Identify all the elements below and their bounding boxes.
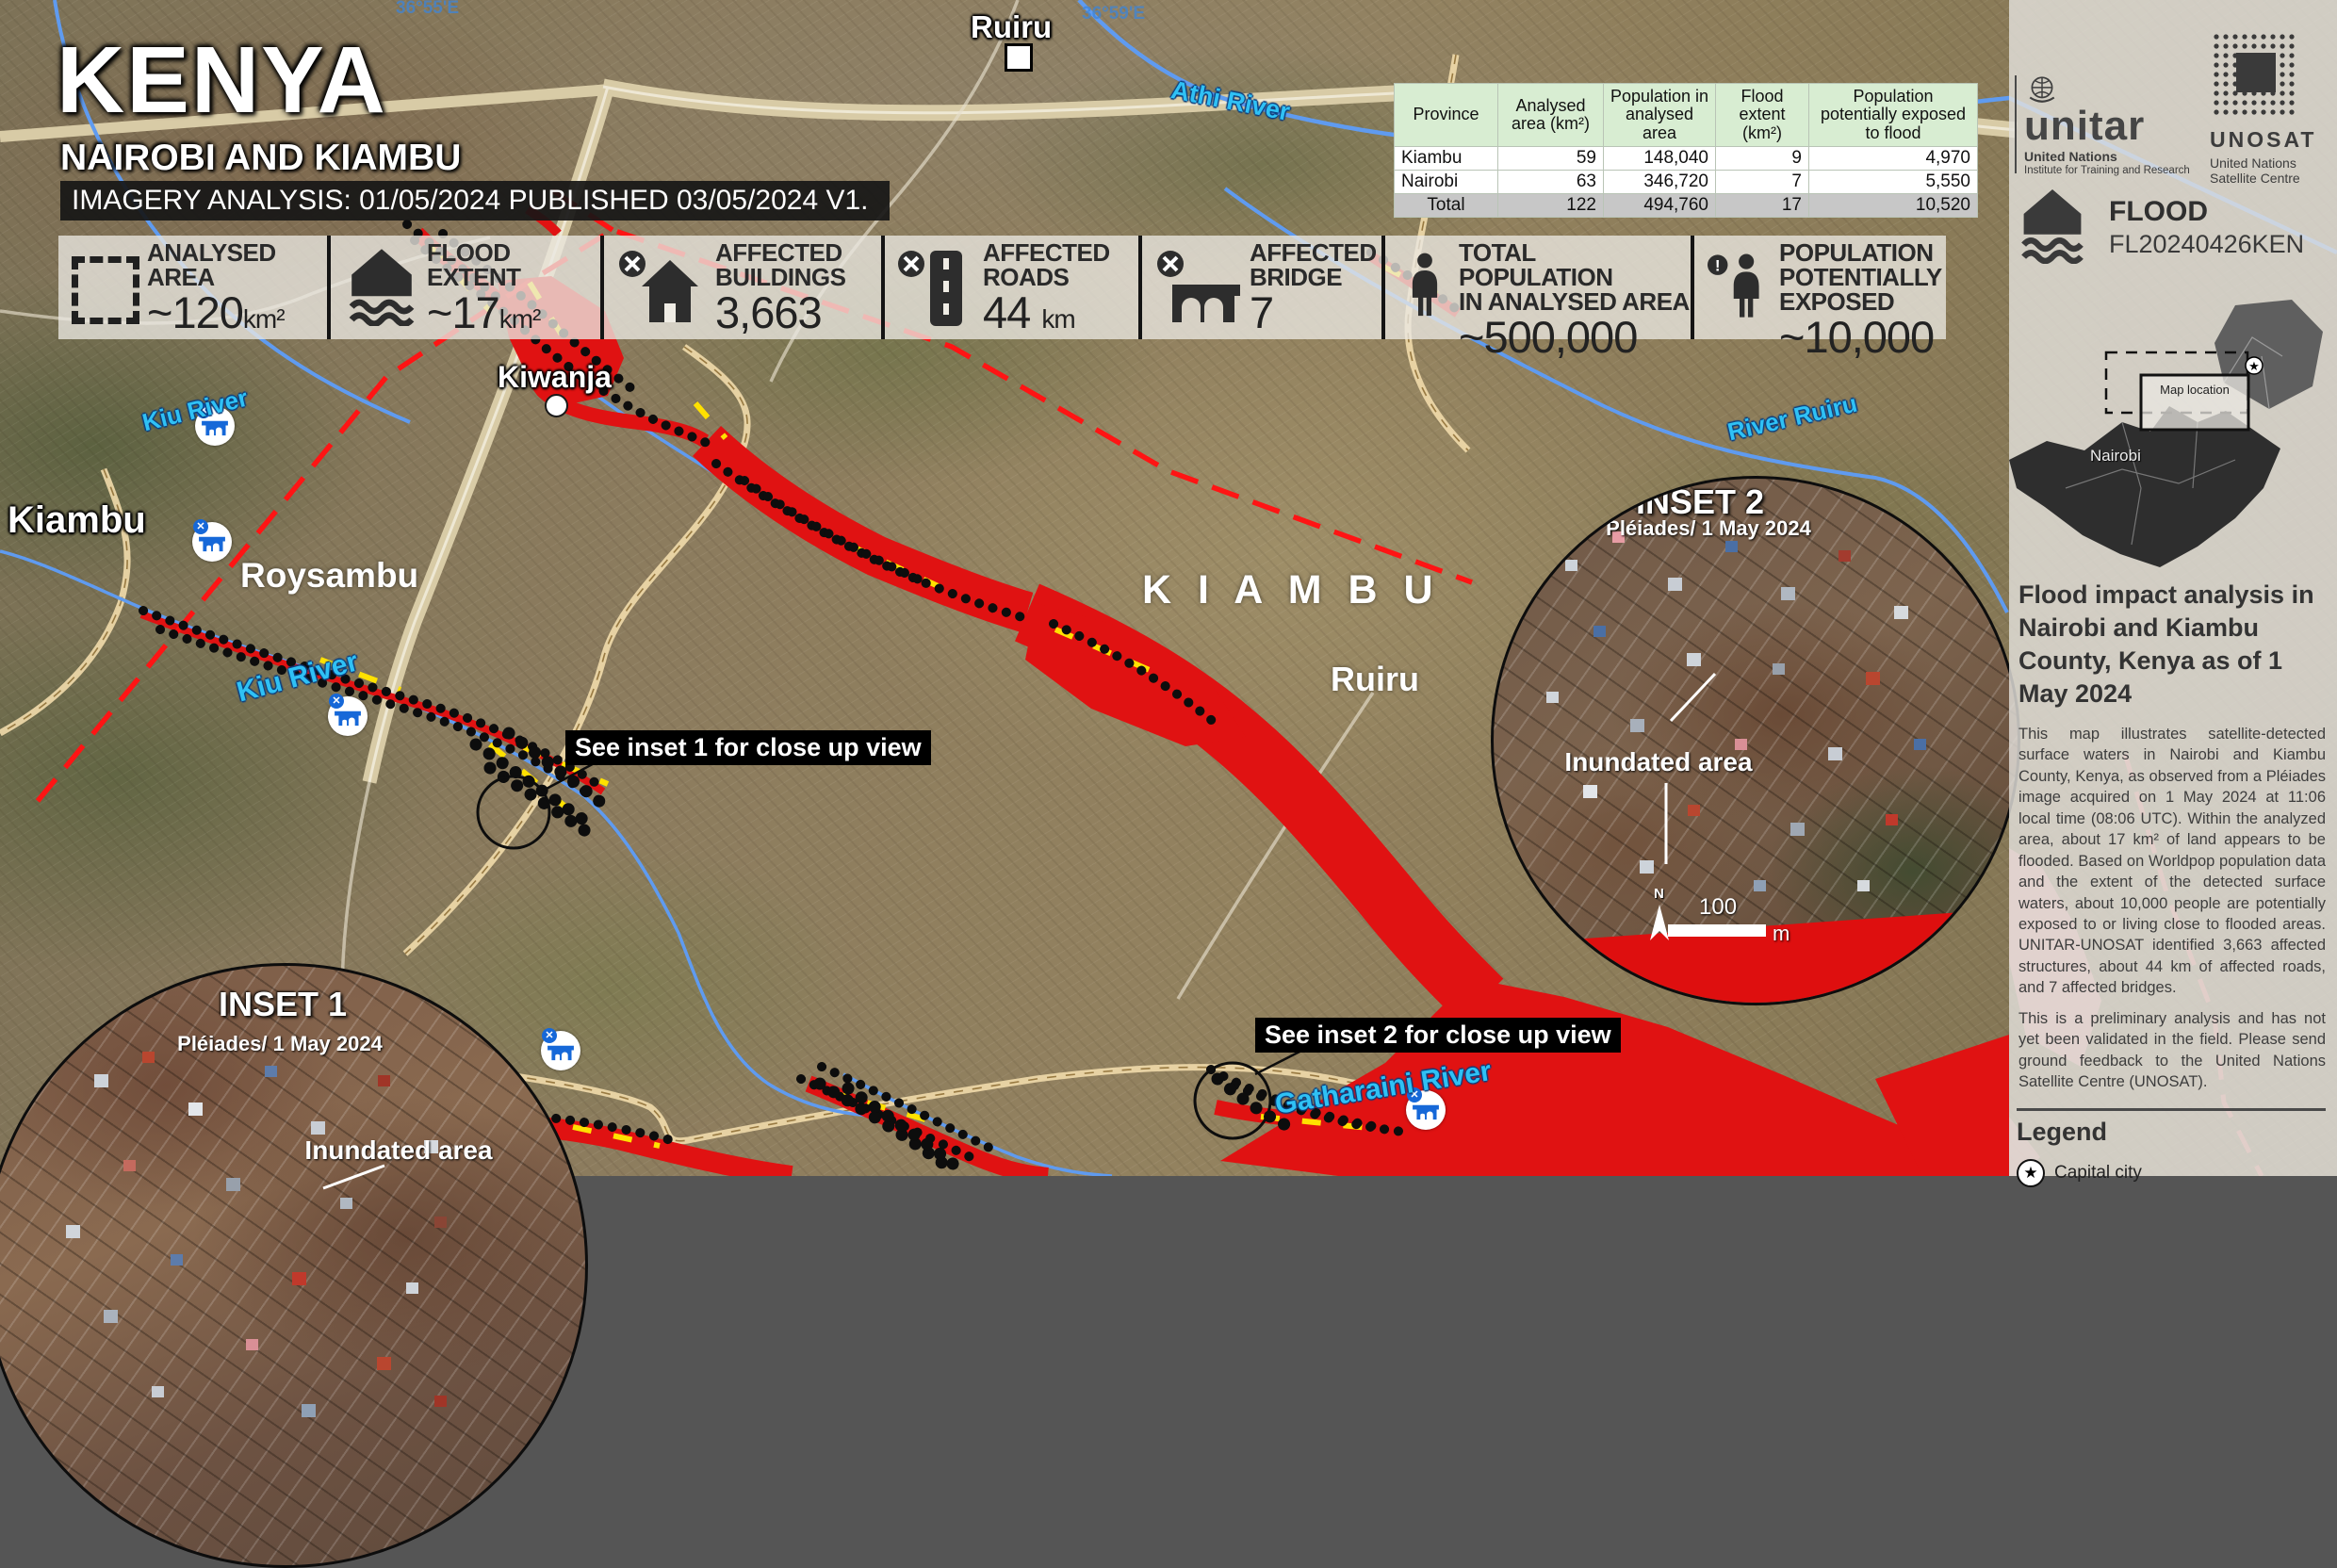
cell: 346,720	[1604, 171, 1716, 194]
stat-affected-roads: AFFECTED ROADS 44 km	[881, 236, 1138, 339]
cell: 10,520	[1809, 194, 1978, 218]
callout-inset1: See inset 1 for close up view	[565, 730, 931, 765]
stat-value: ~120	[147, 287, 243, 337]
sidebar-paragraph-2: This is a preliminary analysis and has n…	[2018, 1008, 2326, 1093]
stat-analysed-area: ANALYSED AREA ~120km²	[58, 236, 327, 339]
inset1-leader	[0, 966, 585, 1565]
col-header: Population potentially exposed to flood	[1809, 84, 1978, 147]
callout-inset2: See inset 2 for close up view	[1255, 1018, 1621, 1053]
map-location-label: Map location	[2152, 383, 2237, 398]
stat-total-population: TOTAL POPULATION IN ANALYSED AREA ~500,0…	[1381, 236, 1691, 339]
page-title: KENYA	[57, 26, 387, 135]
stat-value: 3,663	[715, 287, 822, 337]
place-label-roysambu: Roysambu	[240, 556, 418, 596]
capital-city-icon: ★	[2017, 1159, 2045, 1187]
scale-bar	[1668, 924, 1766, 937]
stat-unit: km²	[243, 304, 285, 334]
cell: 9	[1716, 147, 1809, 171]
x-badge-icon: ✕	[542, 1028, 557, 1043]
north-arrow-icon	[1650, 905, 1669, 940]
stat-label: POPULATION POTENTIALLY EXPOSED	[1779, 238, 1942, 316]
place-label-ruiru-top: Ruiru	[971, 9, 1052, 45]
analysed-area-icon	[72, 247, 139, 324]
cell: 59	[1498, 147, 1604, 171]
graticule-label: 36°55'E	[396, 0, 459, 19]
unosat-line1: United Nations	[2210, 155, 2332, 171]
flood-icon	[2017, 187, 2088, 264]
page-subtitle: NAIROBI AND KIAMBU	[60, 138, 461, 179]
inset2-leaders	[1494, 479, 2018, 1003]
sidebar-heading: Flood impact analysis in Nairobi and Kia…	[2018, 579, 2322, 710]
analysis-date-text: IMAGERY ANALYSIS: 01/05/2024 PUBLISHED 0…	[72, 185, 869, 217]
inset2-scale-value: 100	[1699, 894, 1737, 921]
table-total-row: Total 122 494,760 17 10,520	[1395, 194, 1978, 218]
cell: 5,550	[1809, 171, 1978, 194]
unosat-matrix-icon	[2210, 30, 2298, 119]
affected-bridge-marker: ✕	[541, 1031, 580, 1070]
sidebar-divider	[2017, 1108, 2326, 1111]
cell: 17	[1716, 194, 1809, 218]
affected-bridge-icon	[1155, 247, 1242, 333]
province-table: Province Analysed area (km²) Population …	[1394, 83, 1978, 218]
cell: 4,970	[1809, 147, 1978, 171]
flood-extent-icon	[344, 247, 419, 331]
cell: 122	[1498, 194, 1604, 218]
stat-label: TOTAL POPULATION IN ANALYSED AREA	[1459, 238, 1690, 316]
stat-label: AFFECTED BUILDINGS	[715, 238, 846, 291]
stat-value: ~17	[427, 287, 499, 337]
col-header: Population in analysed area	[1604, 84, 1716, 147]
svg-text:!: !	[1715, 256, 1721, 274]
affected-bridge-marker: ✕	[192, 522, 232, 562]
stat-label: AFFECTED ROADS	[983, 238, 1110, 291]
table-header-row: Province Analysed area (km²) Population …	[1395, 84, 1978, 147]
event-type: FLOOD	[2109, 196, 2208, 228]
total-population-icon	[1398, 247, 1451, 338]
table-row: Kiambu 59 148,040 9 4,970	[1395, 147, 1978, 171]
inset2-north-label: N	[1654, 886, 1664, 902]
affected-bridge-marker: ✕	[328, 696, 368, 736]
place-label-ruiru-mid: Ruiru	[1331, 660, 1419, 699]
affected-roads-icon	[898, 247, 975, 333]
un-emblem-icon	[2026, 73, 2058, 106]
minimap-city-label: Nairobi	[2090, 447, 2141, 465]
stat-value: ~500,000	[1459, 312, 1637, 362]
svg-text:★: ★	[2248, 359, 2260, 373]
stat-unit: km²	[499, 304, 541, 334]
stat-population-exposed: ! POPULATION POTENTIALLY EXPOSED ~10,000	[1691, 236, 1946, 339]
stat-affected-buildings: AFFECTED BUILDINGS 3,663	[600, 236, 881, 339]
stat-affected-bridge: AFFECTED BRIDGE 7	[1138, 236, 1381, 339]
cell: 494,760	[1604, 194, 1716, 218]
cell: Kiambu	[1395, 147, 1498, 171]
stat-value: 7	[1250, 287, 1273, 337]
flood-map-document: { "title": { "country": "KENYA", "region…	[0, 0, 2337, 1176]
legend-item-capital-city: ★ Capital city	[2017, 1159, 2142, 1187]
inset1-circle: INSET 1 Pléiades/ 1 May 2024 Inundated a…	[0, 963, 588, 1568]
stat-flood-extent: FLOOD EXTENT ~17km²	[327, 236, 600, 339]
inset2-scale-unit: m	[1773, 922, 1790, 946]
x-badge-icon: ✕	[193, 519, 208, 534]
stats-strip: ANALYSED AREA ~120km² FLOOD EXTENT ~17km…	[58, 236, 1946, 339]
town-dot-marker	[545, 394, 568, 417]
stat-label: FLOOD EXTENT	[427, 238, 521, 291]
stat-value: 44	[983, 287, 1030, 337]
place-label-kiambu-county: K I A M B U	[1142, 567, 1441, 613]
unosat-wordmark: UNOSAT	[2210, 127, 2332, 153]
graticule-label: 36°59'E	[1082, 4, 1145, 24]
cell: 7	[1716, 171, 1809, 194]
legend-item-label: Capital city	[2054, 1163, 2142, 1184]
cell: Nairobi	[1395, 171, 1498, 194]
inset2-circle: INSET 2 Pléiades/ 1 May 2024 Inundated a…	[1491, 476, 2020, 1005]
population-exposed-icon: !	[1708, 247, 1772, 338]
place-label-kiambu-town: Kiambu	[8, 499, 146, 542]
location-minimap: ★ Map location Nairobi	[2009, 300, 2337, 579]
cell: 63	[1498, 171, 1604, 194]
unitar-line2: Institute for Training and Research	[2024, 165, 2190, 177]
affected-buildings-icon	[617, 247, 708, 333]
place-label-kiwanja: Kiwanja	[498, 360, 612, 395]
unosat-line2: Satellite Centre	[2210, 171, 2332, 186]
col-header: Analysed area (km²)	[1498, 84, 1604, 147]
cell: Total	[1395, 194, 1498, 218]
stat-unit: km	[1041, 304, 1074, 334]
x-badge-icon: ✕	[329, 694, 344, 709]
stat-label: AFFECTED BRIDGE	[1250, 238, 1377, 291]
col-header: Flood extent (km²)	[1716, 84, 1809, 147]
table-row: Nairobi 63 346,720 7 5,550	[1395, 171, 1978, 194]
unitar-wordmark: unitar	[2024, 106, 2145, 147]
sidebar-paragraph-1: This map illustrates satellite-detected …	[2018, 724, 2326, 999]
flood-event-badge: FLOOD FL20240426KEN	[2017, 187, 2328, 271]
event-code: FL20240426KEN	[2109, 230, 2304, 259]
stat-label: ANALYSED AREA	[147, 238, 276, 291]
town-square-marker	[1005, 43, 1033, 72]
cell: 148,040	[1604, 147, 1716, 171]
unitar-line1: United Nations	[2024, 149, 2117, 164]
stat-value: ~10,000	[1779, 312, 1934, 362]
analysis-date-bar: IMAGERY ANALYSIS: 01/05/2024 PUBLISHED 0…	[60, 181, 890, 220]
legend-title: Legend	[2017, 1118, 2107, 1147]
unosat-logo: UNOSAT United Nations Satellite Centre	[2210, 30, 2332, 186]
col-header: Province	[1395, 84, 1498, 147]
